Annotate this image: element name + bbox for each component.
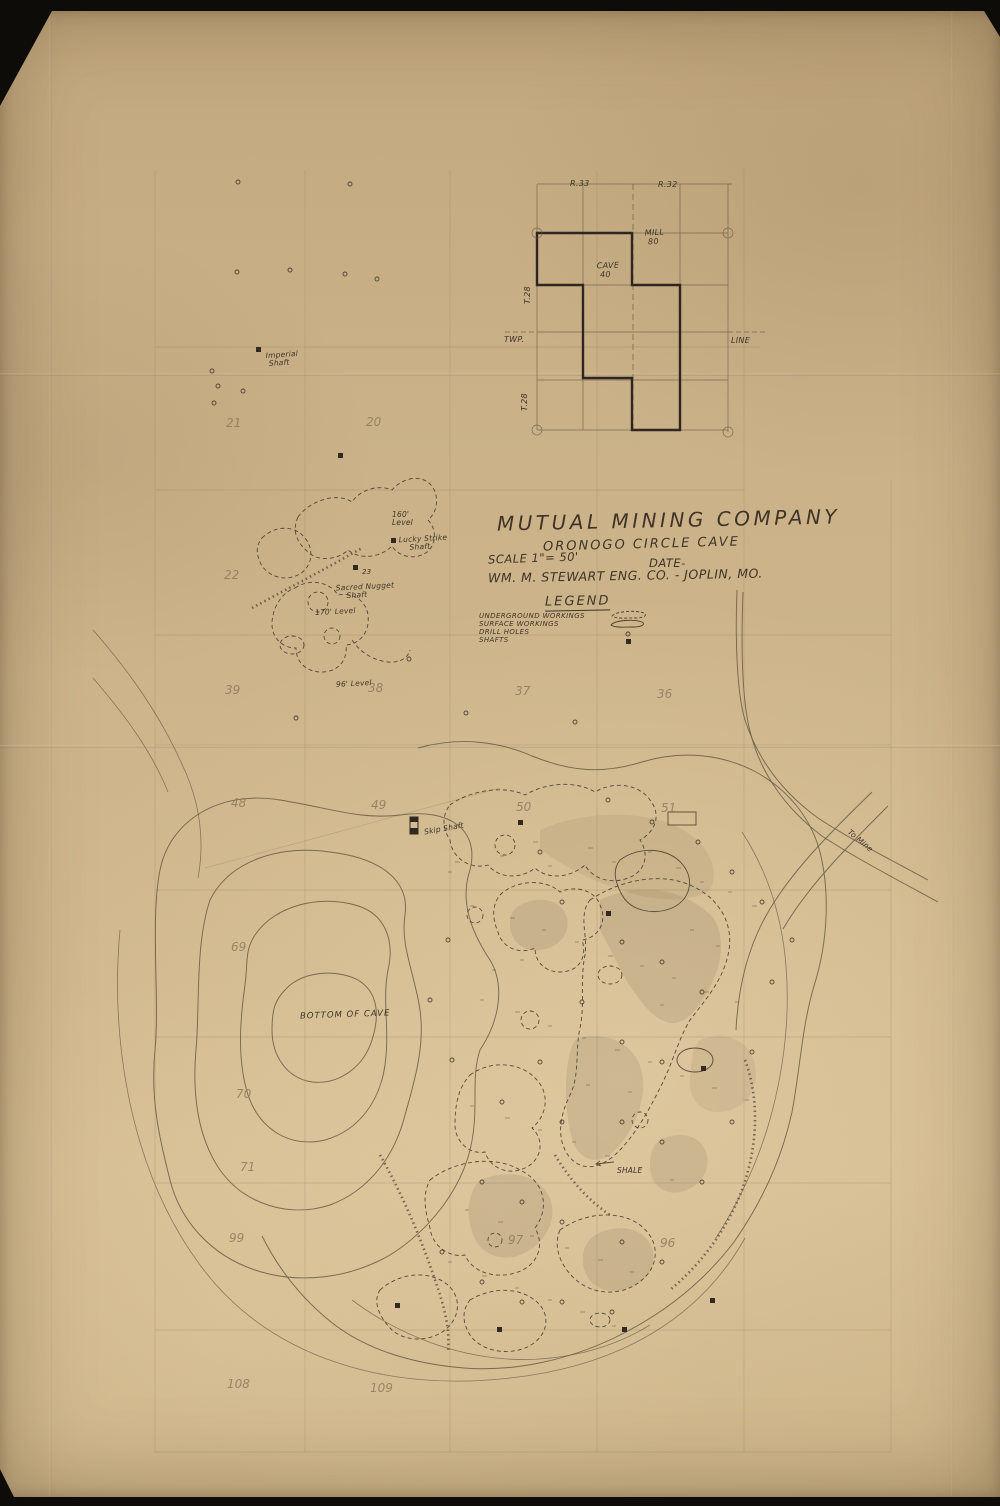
section-20: 20 xyxy=(366,416,381,429)
section-37: 37 xyxy=(515,685,530,698)
label-shaft-23: 23 xyxy=(362,569,371,577)
roads xyxy=(736,590,938,1030)
section-69: 69 xyxy=(231,941,246,954)
section-22: 22 xyxy=(224,569,239,582)
plat-t28-lower: T.28 xyxy=(521,393,530,411)
section-49: 49 xyxy=(371,799,386,812)
section-108: 108 xyxy=(227,1378,250,1391)
section-36: 36 xyxy=(657,688,672,701)
plat-t28-upper: T.28 xyxy=(524,286,533,304)
label-lucky-strike-shaft: Lucky Strike Shaft xyxy=(399,534,448,553)
section-70: 70 xyxy=(236,1088,251,1101)
section-99: 99 xyxy=(229,1232,244,1245)
title-scale: SCALE 1"= 50' xyxy=(488,550,579,566)
plat-cave-tract: CAVE 40 xyxy=(597,262,620,280)
legend-symbol-surface xyxy=(611,620,644,627)
legend-symbol-drillhole xyxy=(626,632,630,636)
label-160-level: 160' Level xyxy=(392,511,413,527)
label-shale: SHALE xyxy=(617,1167,642,1175)
section-109: 109 xyxy=(370,1382,393,1395)
west-boundary-lines xyxy=(93,630,201,878)
skip-shaft-symbol xyxy=(410,817,418,834)
shaded-workings xyxy=(469,815,756,1291)
section-51: 51 xyxy=(661,802,676,815)
plat-range-32: R.32 xyxy=(658,181,677,190)
map-linework xyxy=(0,11,1000,1497)
legend-title: LEGEND xyxy=(545,594,611,611)
plat-twp: TWP. xyxy=(504,336,524,345)
legend-symbol-shaft xyxy=(626,639,631,644)
plat-range-33: R.33 xyxy=(570,180,589,189)
legend-symbol-underground xyxy=(612,611,646,618)
section-39: 39 xyxy=(225,684,240,697)
upper-cave-workings xyxy=(252,478,437,672)
section-71: 71 xyxy=(240,1161,255,1174)
map-sheet: MUTUAL MINING COMPANY ORONOGO CIRCLE CAV… xyxy=(0,11,1000,1497)
legend-symbols xyxy=(608,609,653,647)
plat-line: LINE xyxy=(731,337,750,346)
label-imperial-shaft: Imperial Shaft xyxy=(265,350,298,368)
section-50: 50 xyxy=(516,801,531,814)
plat-grid xyxy=(505,184,768,437)
legend-item-shafts: SHAFTS xyxy=(479,637,509,645)
plat-mill-tract: MILL 80 xyxy=(645,229,665,247)
section-97: 97 xyxy=(508,1234,523,1247)
section-21: 21 xyxy=(226,417,241,430)
section-96: 96 xyxy=(660,1237,675,1250)
section-48: 48 xyxy=(231,797,246,810)
label-sacred-nugget-shaft: Sacred Nugget Shaft xyxy=(336,581,395,600)
